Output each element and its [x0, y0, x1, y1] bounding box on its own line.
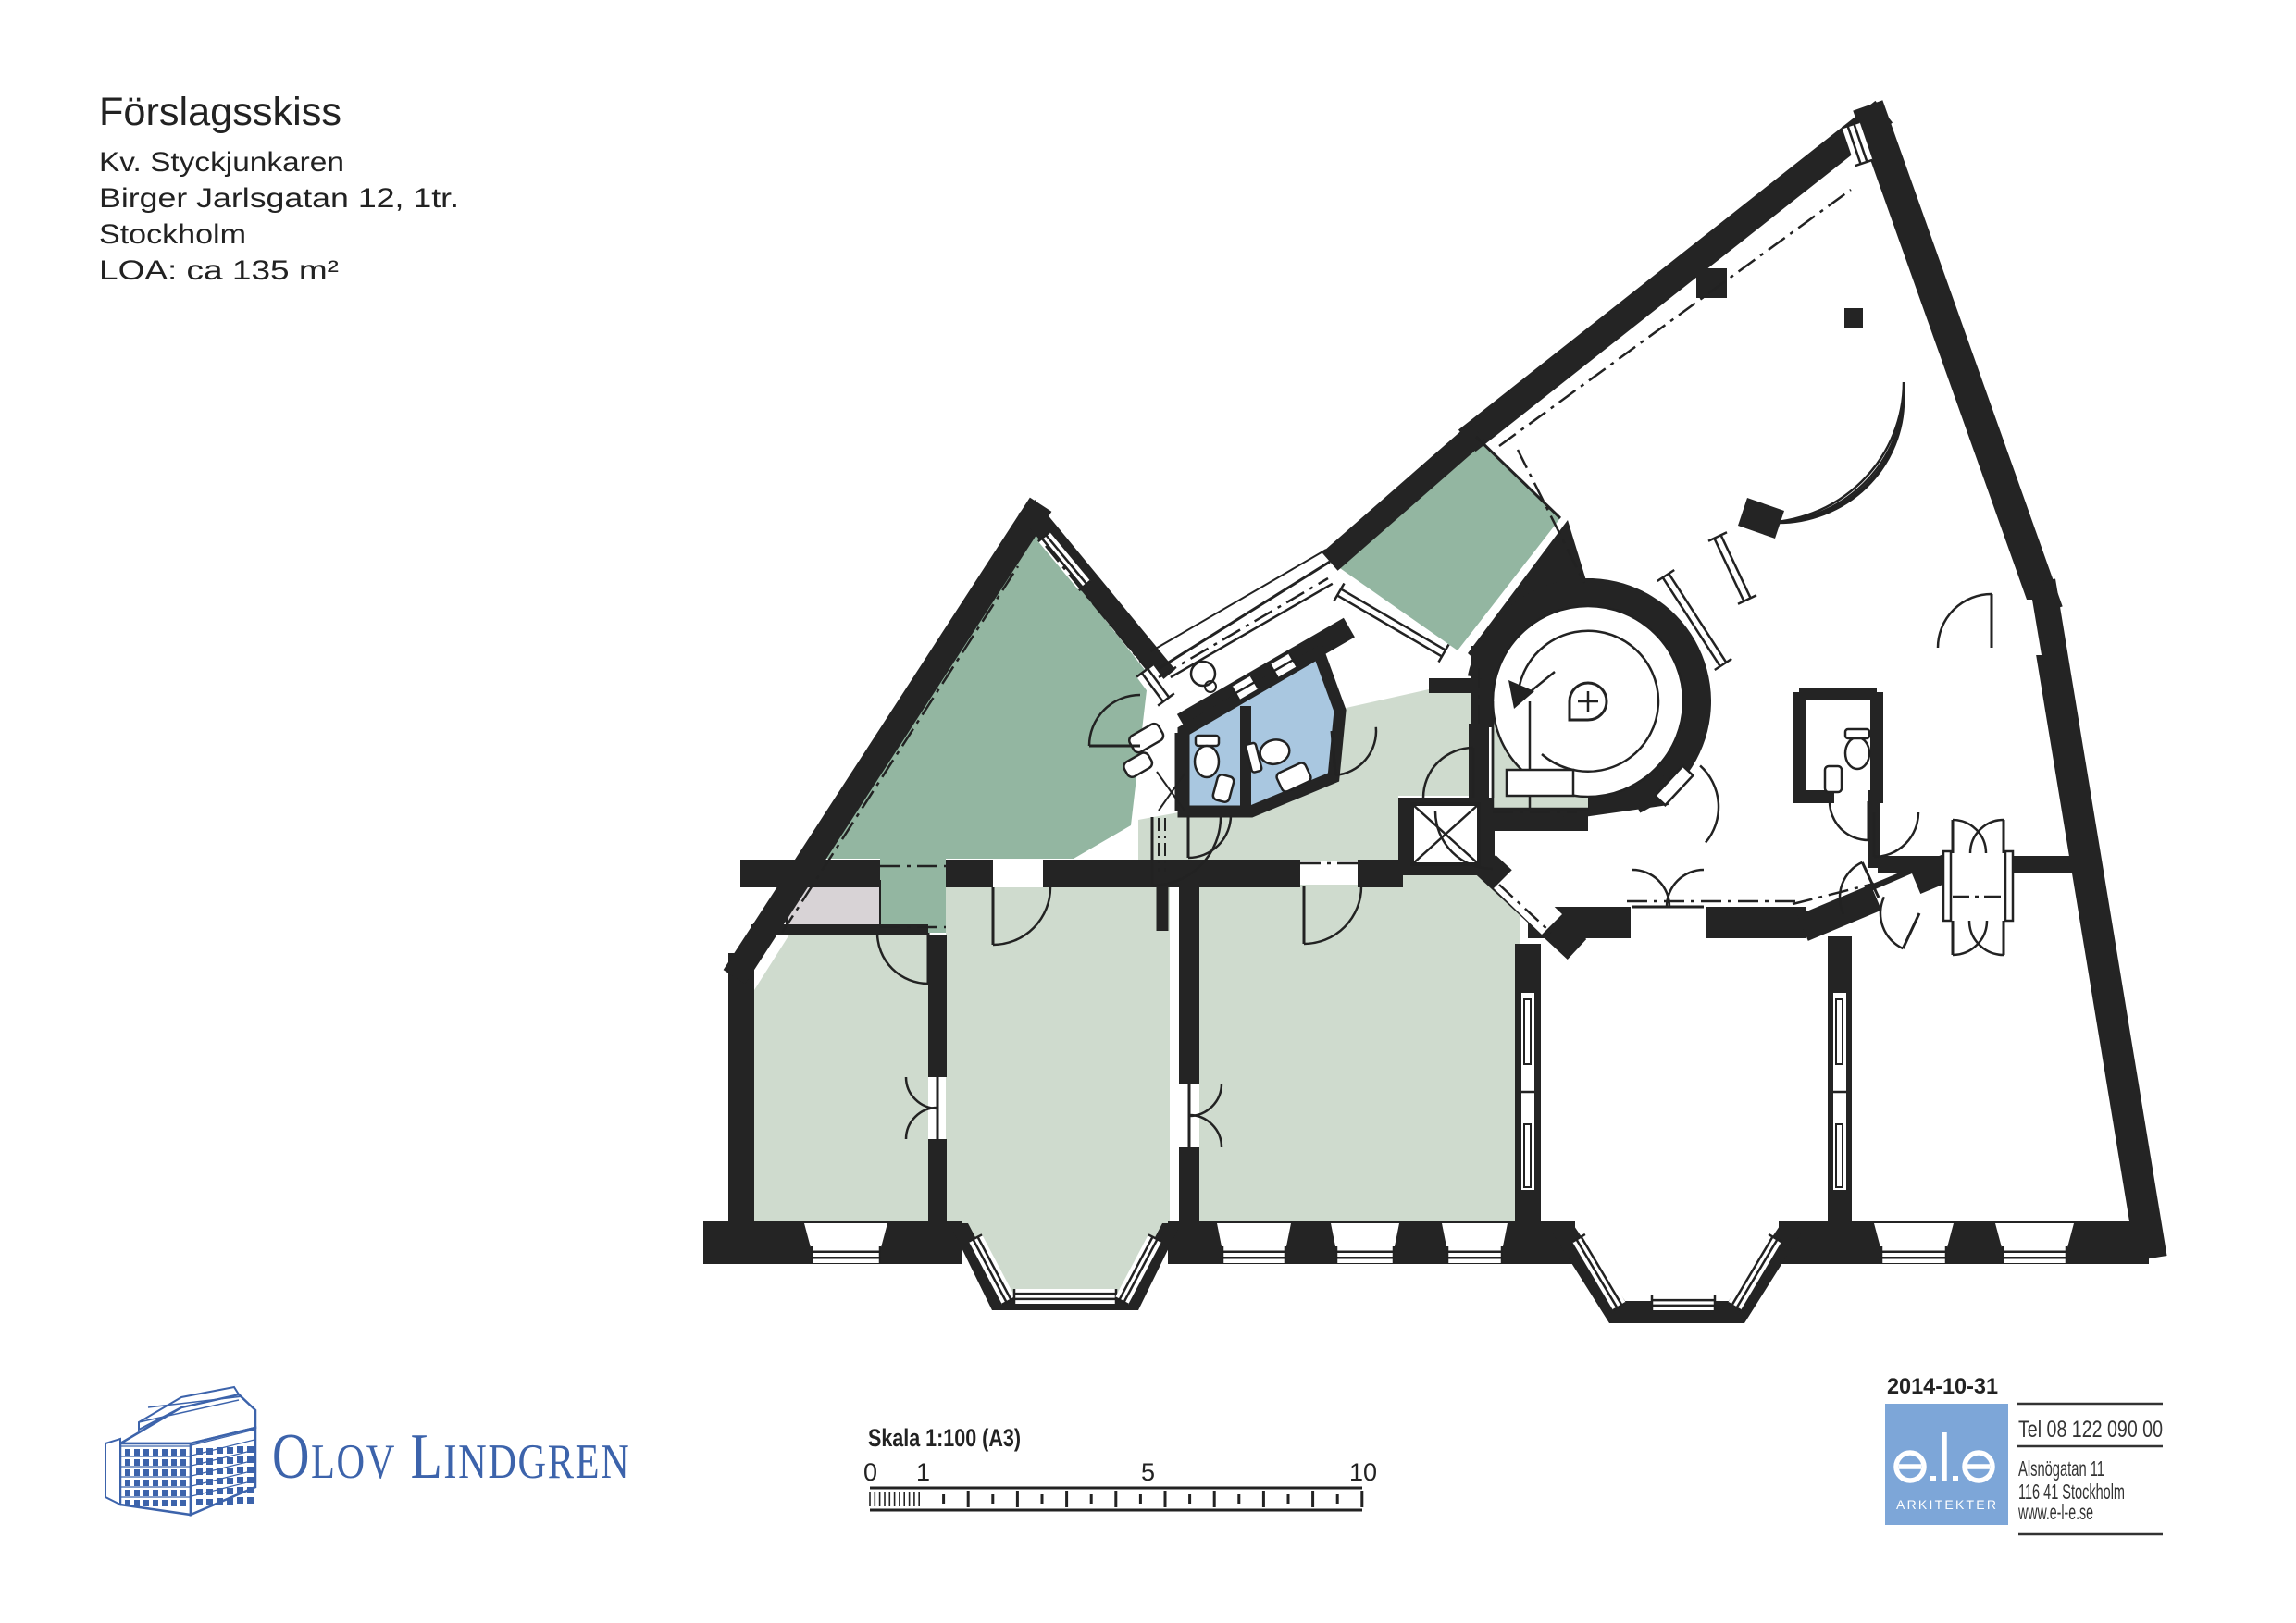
- svg-text:Skala 1:100 (A3): Skala 1:100 (A3): [868, 1424, 1021, 1452]
- svg-text:2014-10-31: 2014-10-31: [1887, 1374, 1998, 1399]
- svg-text:ARKITEKTER: ARKITEKTER: [1896, 1497, 1996, 1512]
- svg-text:LOA: ca 135 m²: LOA: ca 135 m²: [99, 255, 339, 286]
- svg-text:Förslagsskiss: Förslagsskiss: [99, 90, 341, 134]
- svg-text:10: 10: [1349, 1458, 1377, 1486]
- svg-text:0: 0: [863, 1458, 877, 1486]
- svg-text:5: 5: [1141, 1458, 1155, 1486]
- svg-text:Alsnögatan 11: Alsnögatan 11: [2018, 1456, 2104, 1481]
- svg-text:Kv. Styckjunkaren: Kv. Styckjunkaren: [99, 147, 344, 178]
- svg-text:Tel 08 122 090 00: Tel 08 122 090 00: [2018, 1417, 2163, 1443]
- svg-text:OLOV LINDGREN: OLOV LINDGREN: [272, 1420, 630, 1492]
- svg-text:Birger Jarlsgatan 12, 1tr.: Birger Jarlsgatan 12, 1tr.: [99, 183, 459, 214]
- svg-text:www.e-l-e.se: www.e-l-e.se: [2017, 1500, 2093, 1524]
- svg-text:1: 1: [916, 1458, 930, 1486]
- svg-text:Stockholm: Stockholm: [99, 219, 246, 250]
